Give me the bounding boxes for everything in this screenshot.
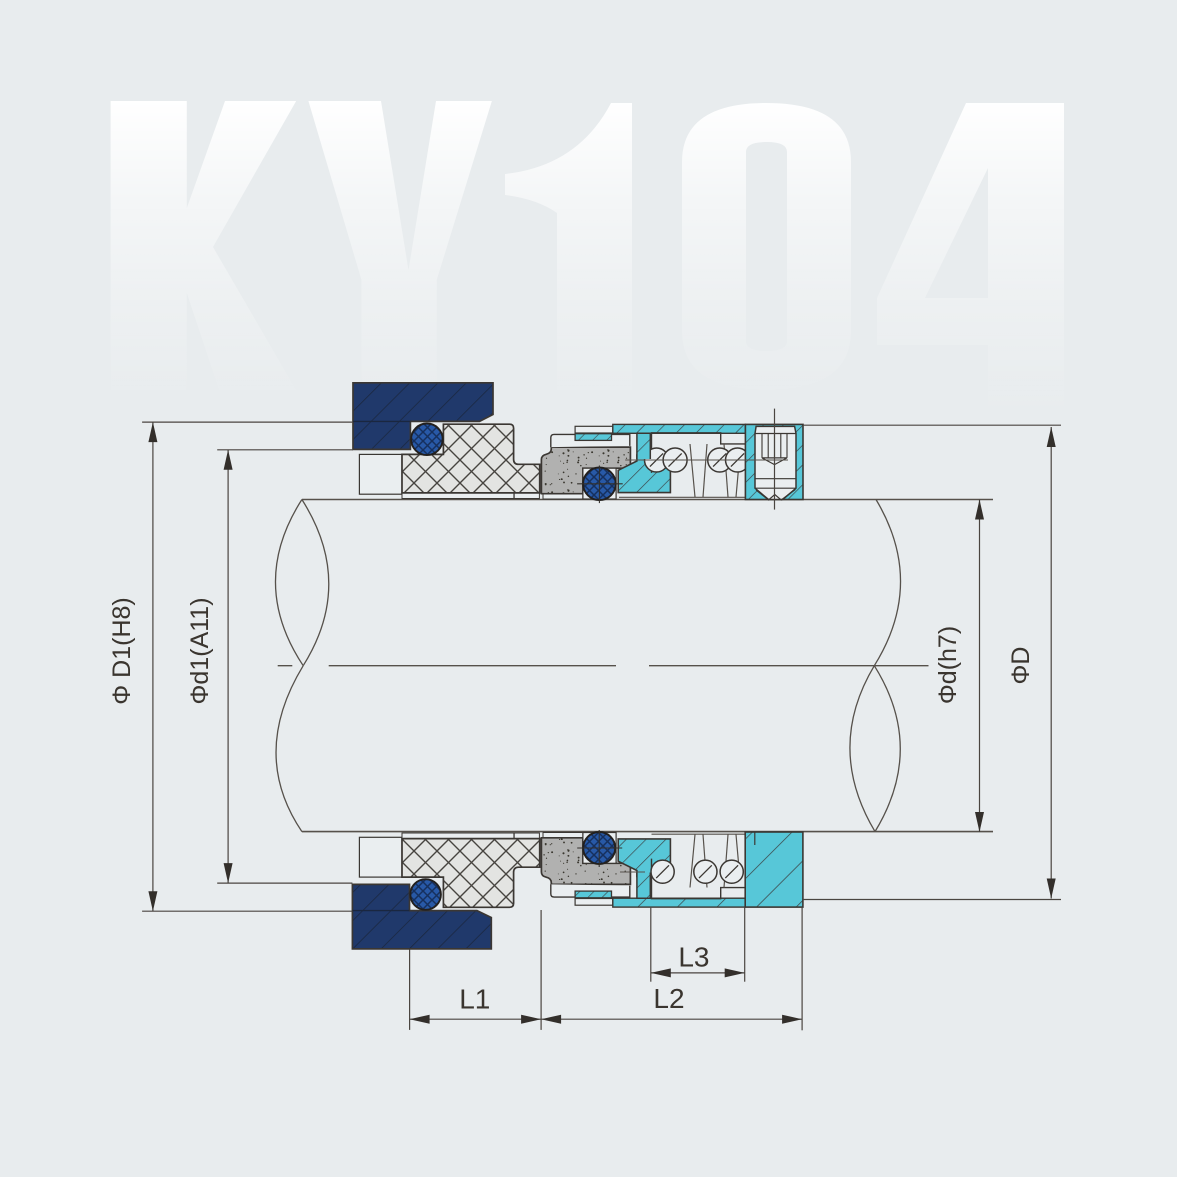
svg-text:ΦD: ΦD	[1007, 646, 1035, 684]
svg-text:L2: L2	[653, 983, 684, 1014]
svg-text:Φ D1(H8): Φ D1(H8)	[108, 597, 136, 704]
svg-text:Φd1(A11): Φd1(A11)	[186, 597, 214, 704]
svg-text:Φd(h7): Φd(h7)	[934, 626, 962, 704]
svg-text:L3: L3	[678, 941, 709, 972]
svg-text:L1: L1	[459, 984, 490, 1015]
